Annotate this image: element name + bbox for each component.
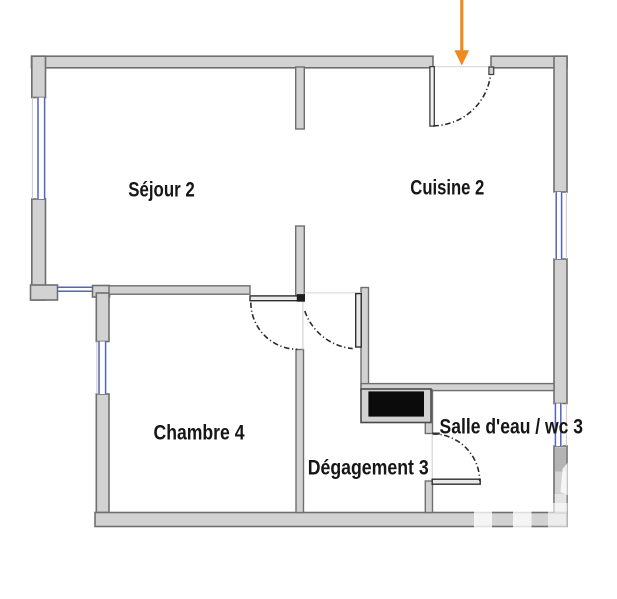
svg-text:Séjour 2: Séjour 2 [128, 178, 195, 201]
svg-text:Dégagement 3: Dégagement 3 [308, 457, 429, 480]
svg-text:Cuisine 2: Cuisine 2 [410, 177, 484, 200]
svg-text:Salle d'eau / wc 3: Salle d'eau / wc 3 [440, 416, 584, 439]
svg-text:Chambre 4: Chambre 4 [154, 422, 245, 445]
